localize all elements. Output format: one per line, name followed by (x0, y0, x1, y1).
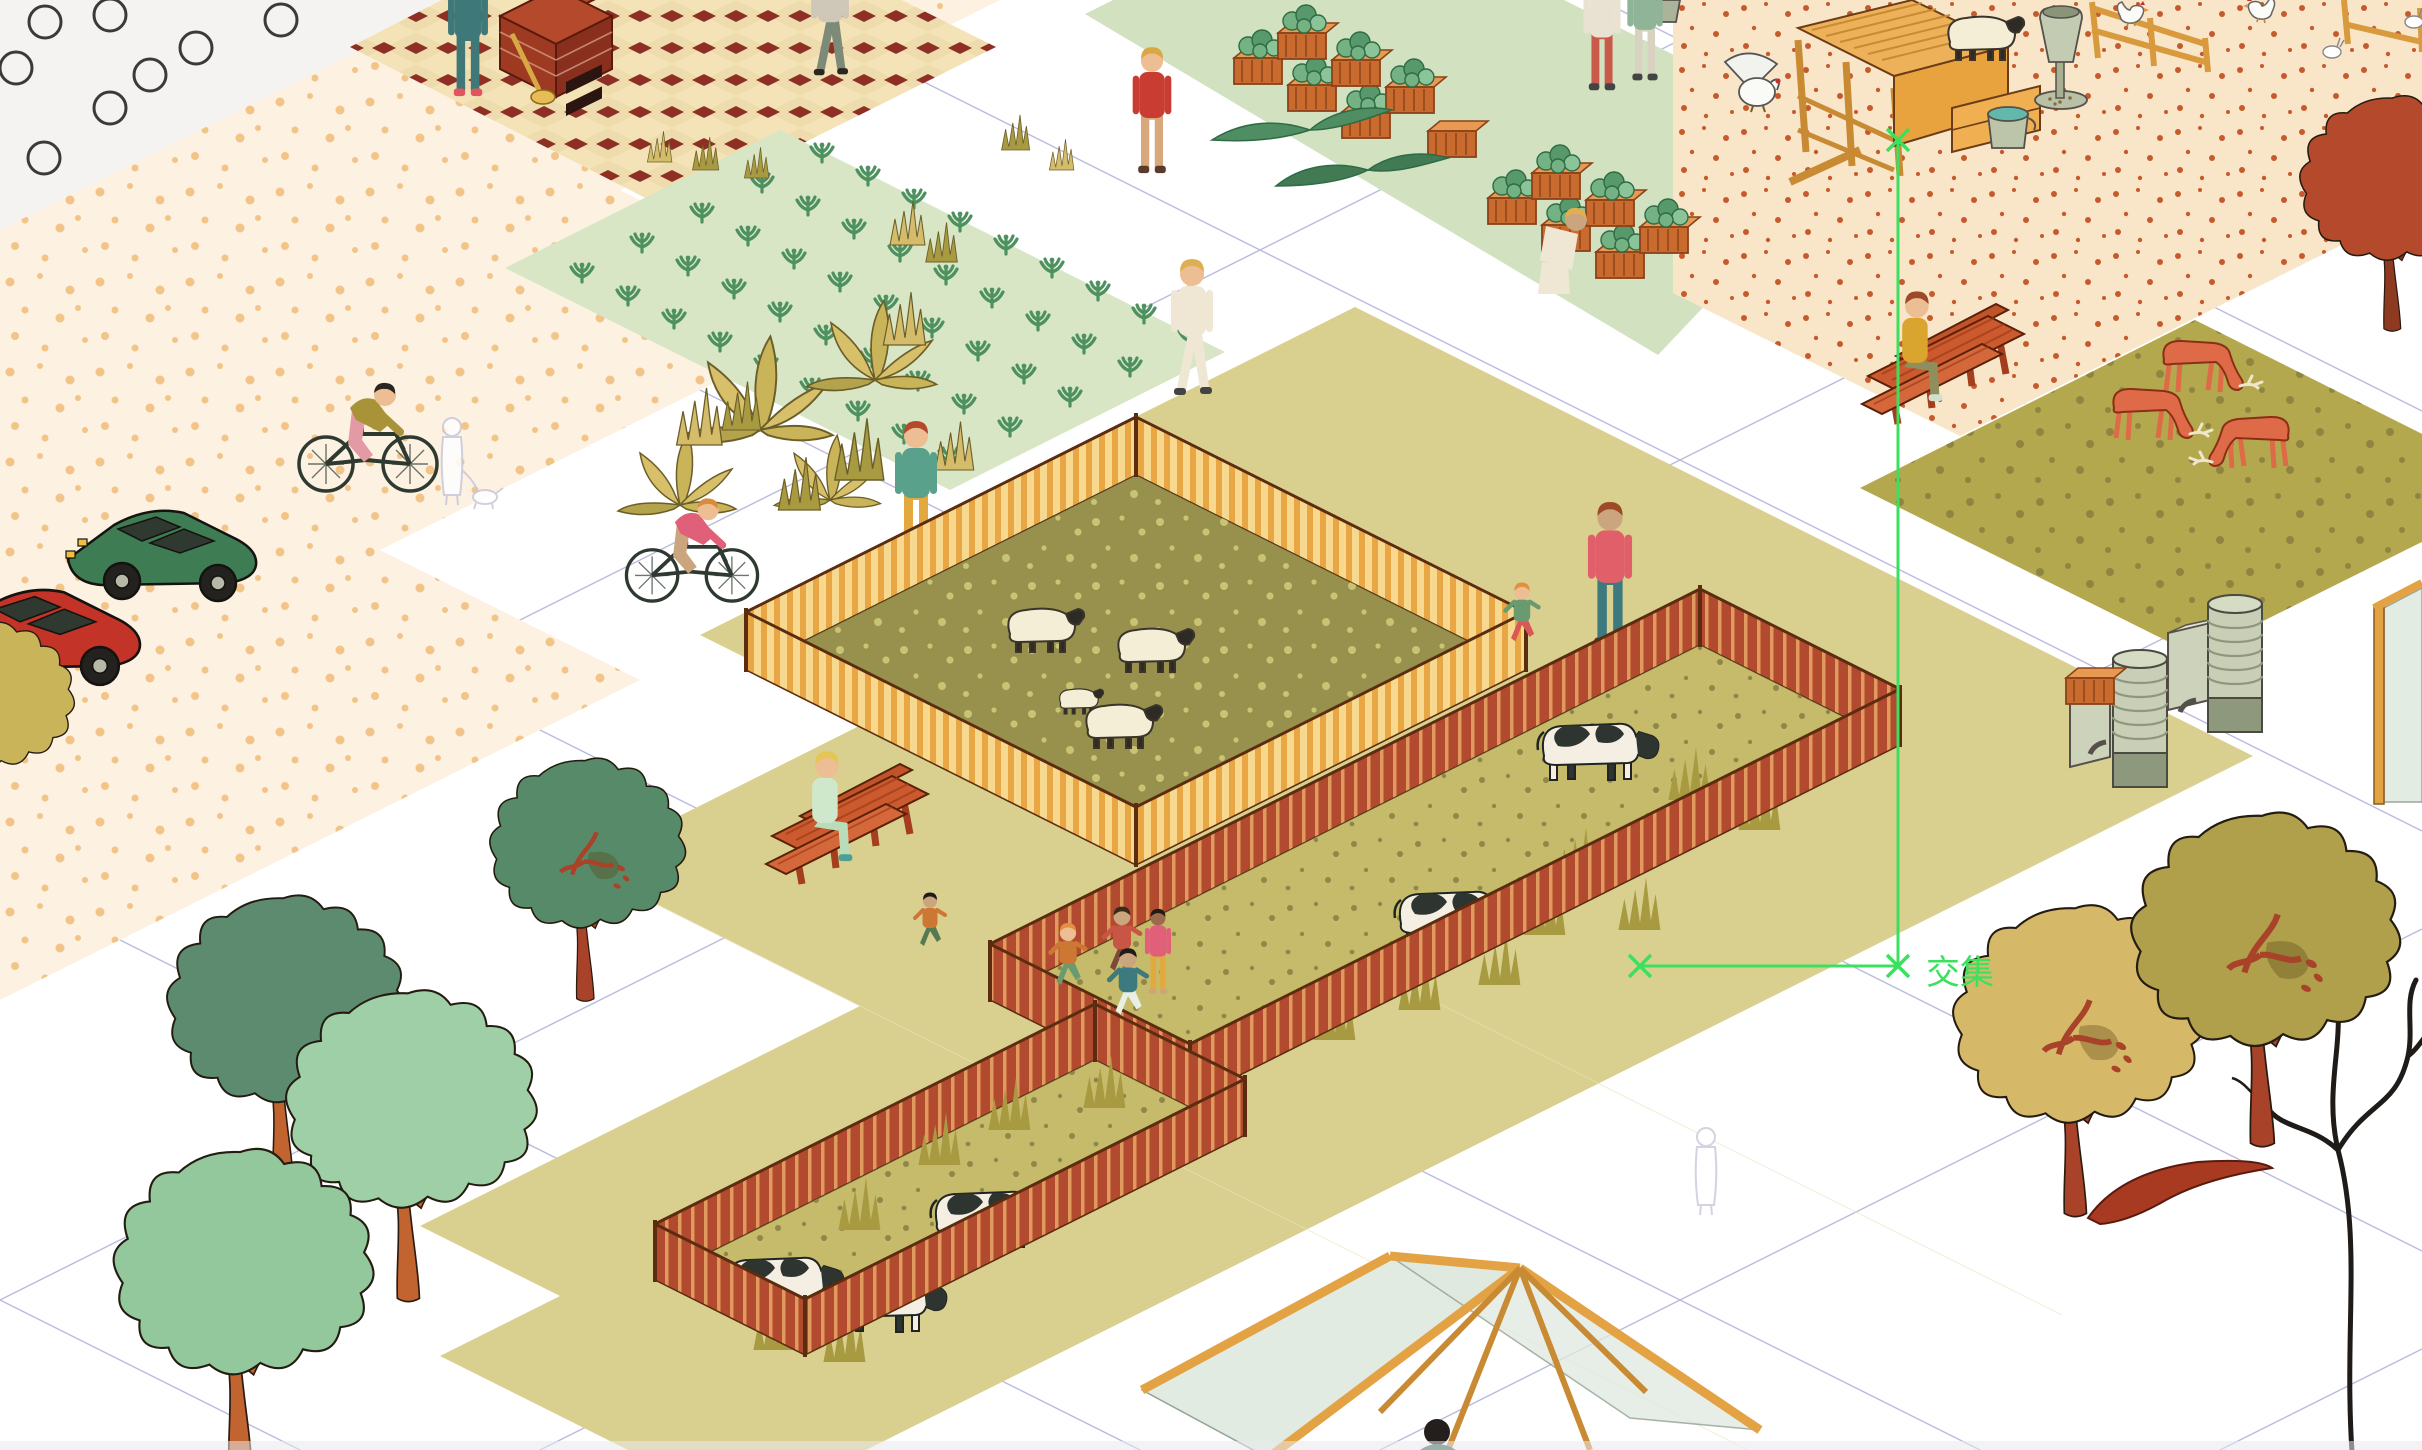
ghost-sketch-person[interactable] (1696, 1128, 1717, 1215)
canvas-svg: 交集 (0, 0, 2422, 1450)
canvas-bottom-edge (0, 1441, 2422, 1450)
greenhouse-right-edge[interactable] (2374, 583, 2422, 804)
design-canvas[interactable]: 交集 (0, 0, 2422, 1450)
silo-tank[interactable] (2208, 595, 2262, 732)
guide-label: 交集 (1926, 953, 1994, 993)
